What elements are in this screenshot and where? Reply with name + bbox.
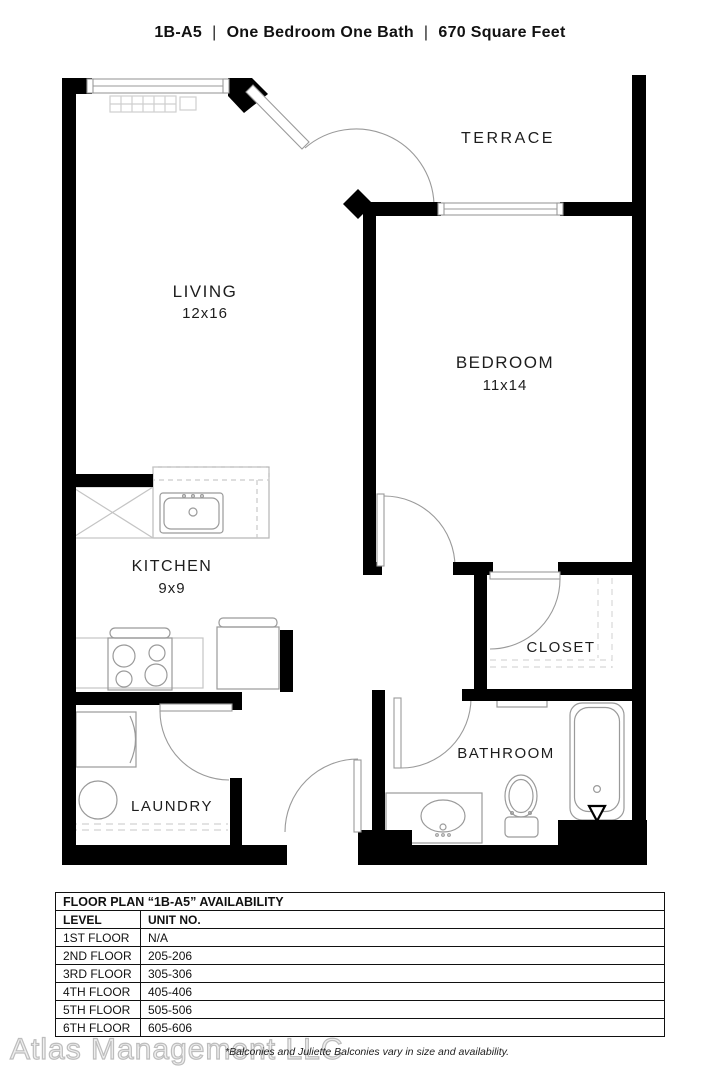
entry-door-leaf xyxy=(354,760,361,832)
table-row: 3RD FLOOR305-306 xyxy=(56,965,665,983)
terrace-door-arc xyxy=(305,129,434,204)
bedroom-door-arc xyxy=(384,496,455,567)
wall-right xyxy=(632,75,646,865)
table-row: 5TH FLOOR505-506 xyxy=(56,1001,665,1019)
wall-bathroom-foot xyxy=(358,830,412,847)
wall-bottom-right xyxy=(358,845,647,865)
wall-closet-top xyxy=(558,562,632,575)
kitchen-label: KITCHEN xyxy=(132,558,213,575)
wall-bathroom-top xyxy=(462,689,632,701)
closet-door-leaf xyxy=(490,572,560,579)
kitchen-counter xyxy=(153,467,269,538)
bedroom-door-leaf xyxy=(377,494,384,566)
wall-laundry-right xyxy=(230,778,242,848)
laundry-shelf xyxy=(70,824,228,830)
range-stove xyxy=(73,628,203,690)
bathtub xyxy=(570,703,624,820)
floor-plan-page: 1B-A5|One Bedroom One Bath|670 Square Fe… xyxy=(0,0,720,1080)
wall-kitchen-laundry xyxy=(62,692,242,705)
closet-label: CLOSET xyxy=(526,639,595,656)
unit-cell: 305-306 xyxy=(141,965,665,983)
wall-kitchen-stub xyxy=(62,474,153,487)
entry-door-arc xyxy=(285,759,358,832)
laundry-door-leaf xyxy=(160,704,232,711)
unit-cell: N/A xyxy=(141,929,665,947)
wall-hall-bedroom xyxy=(453,562,493,575)
wall-bottom-left xyxy=(62,845,287,865)
walls-layer xyxy=(62,75,647,865)
dishwasher xyxy=(217,618,279,689)
tub-marker-triangle xyxy=(589,806,605,821)
wall-kitchen-right-stub xyxy=(280,630,293,692)
table-row: 4TH FLOOR405-406 xyxy=(56,983,665,1001)
table-row: 1ST FLOORN/A xyxy=(56,929,665,947)
laundry-door-arc xyxy=(160,711,229,780)
living-label: LIVING xyxy=(173,282,238,301)
wall-bathroom-left xyxy=(372,690,385,835)
living-dims: 12x16 xyxy=(182,305,228,322)
laundry-label: LAUNDRY xyxy=(131,798,213,815)
level-cell: 3RD FLOOR xyxy=(56,965,141,983)
unit-cell: 505-506 xyxy=(141,1001,665,1019)
level-cell: 5TH FLOOR xyxy=(56,1001,141,1019)
wall-bedroom-top-right xyxy=(560,202,632,216)
terrace-door-leaf xyxy=(246,85,309,149)
table-body: 1ST FLOORN/A2ND FLOOR205-2063RD FLOOR305… xyxy=(56,929,665,1037)
dryer xyxy=(79,781,117,819)
door-arcs xyxy=(160,129,560,832)
table-row: 2ND FLOOR205-206 xyxy=(56,947,665,965)
level-cell: 4TH FLOOR xyxy=(56,983,141,1001)
kitchen-dims: 9x9 xyxy=(158,580,185,597)
wall-tub-chunk xyxy=(558,820,647,847)
table-header-row: LEVEL UNIT NO. xyxy=(56,911,665,929)
bedroom-label: BEDROOM xyxy=(456,353,554,372)
availability-table: FLOOR PLAN “1B-A5” AVAILABILITY LEVEL UN… xyxy=(55,892,665,1037)
shower-niche xyxy=(497,700,547,707)
wall-closet-left xyxy=(474,575,487,697)
living-window xyxy=(87,79,229,93)
heater-unit xyxy=(110,96,196,112)
level-cell: 1ST FLOOR xyxy=(56,929,141,947)
openings-layer xyxy=(87,79,563,832)
bathroom-door-leaf xyxy=(394,698,401,768)
floor-plan-drawing: TERRACE LIVING 12x16 BEDROOM 11x14 KITCH… xyxy=(0,0,720,885)
toilet xyxy=(505,775,538,837)
balcony-note: *Balconies and Juliette Balconies vary i… xyxy=(225,1046,509,1058)
table-title-row: FLOOR PLAN “1B-A5” AVAILABILITY xyxy=(56,893,665,911)
level-cell: 2ND FLOOR xyxy=(56,947,141,965)
unit-cell: 405-406 xyxy=(141,983,665,1001)
column-header-level: LEVEL xyxy=(56,911,141,929)
refrigerator xyxy=(72,487,153,538)
bathroom-label: BATHROOM xyxy=(457,745,555,762)
wall-bedroom-divider xyxy=(363,208,376,568)
kitchen-sink xyxy=(160,493,223,533)
unit-cell: 205-206 xyxy=(141,947,665,965)
column-header-unit: UNIT NO. xyxy=(141,911,665,929)
table-title: FLOOR PLAN “1B-A5” AVAILABILITY xyxy=(56,893,665,911)
washer xyxy=(76,712,136,767)
terrace-label: TERRACE xyxy=(461,130,555,147)
bedroom-window xyxy=(438,203,563,215)
wall-left xyxy=(62,78,76,865)
bedroom-dims: 11x14 xyxy=(483,377,528,394)
